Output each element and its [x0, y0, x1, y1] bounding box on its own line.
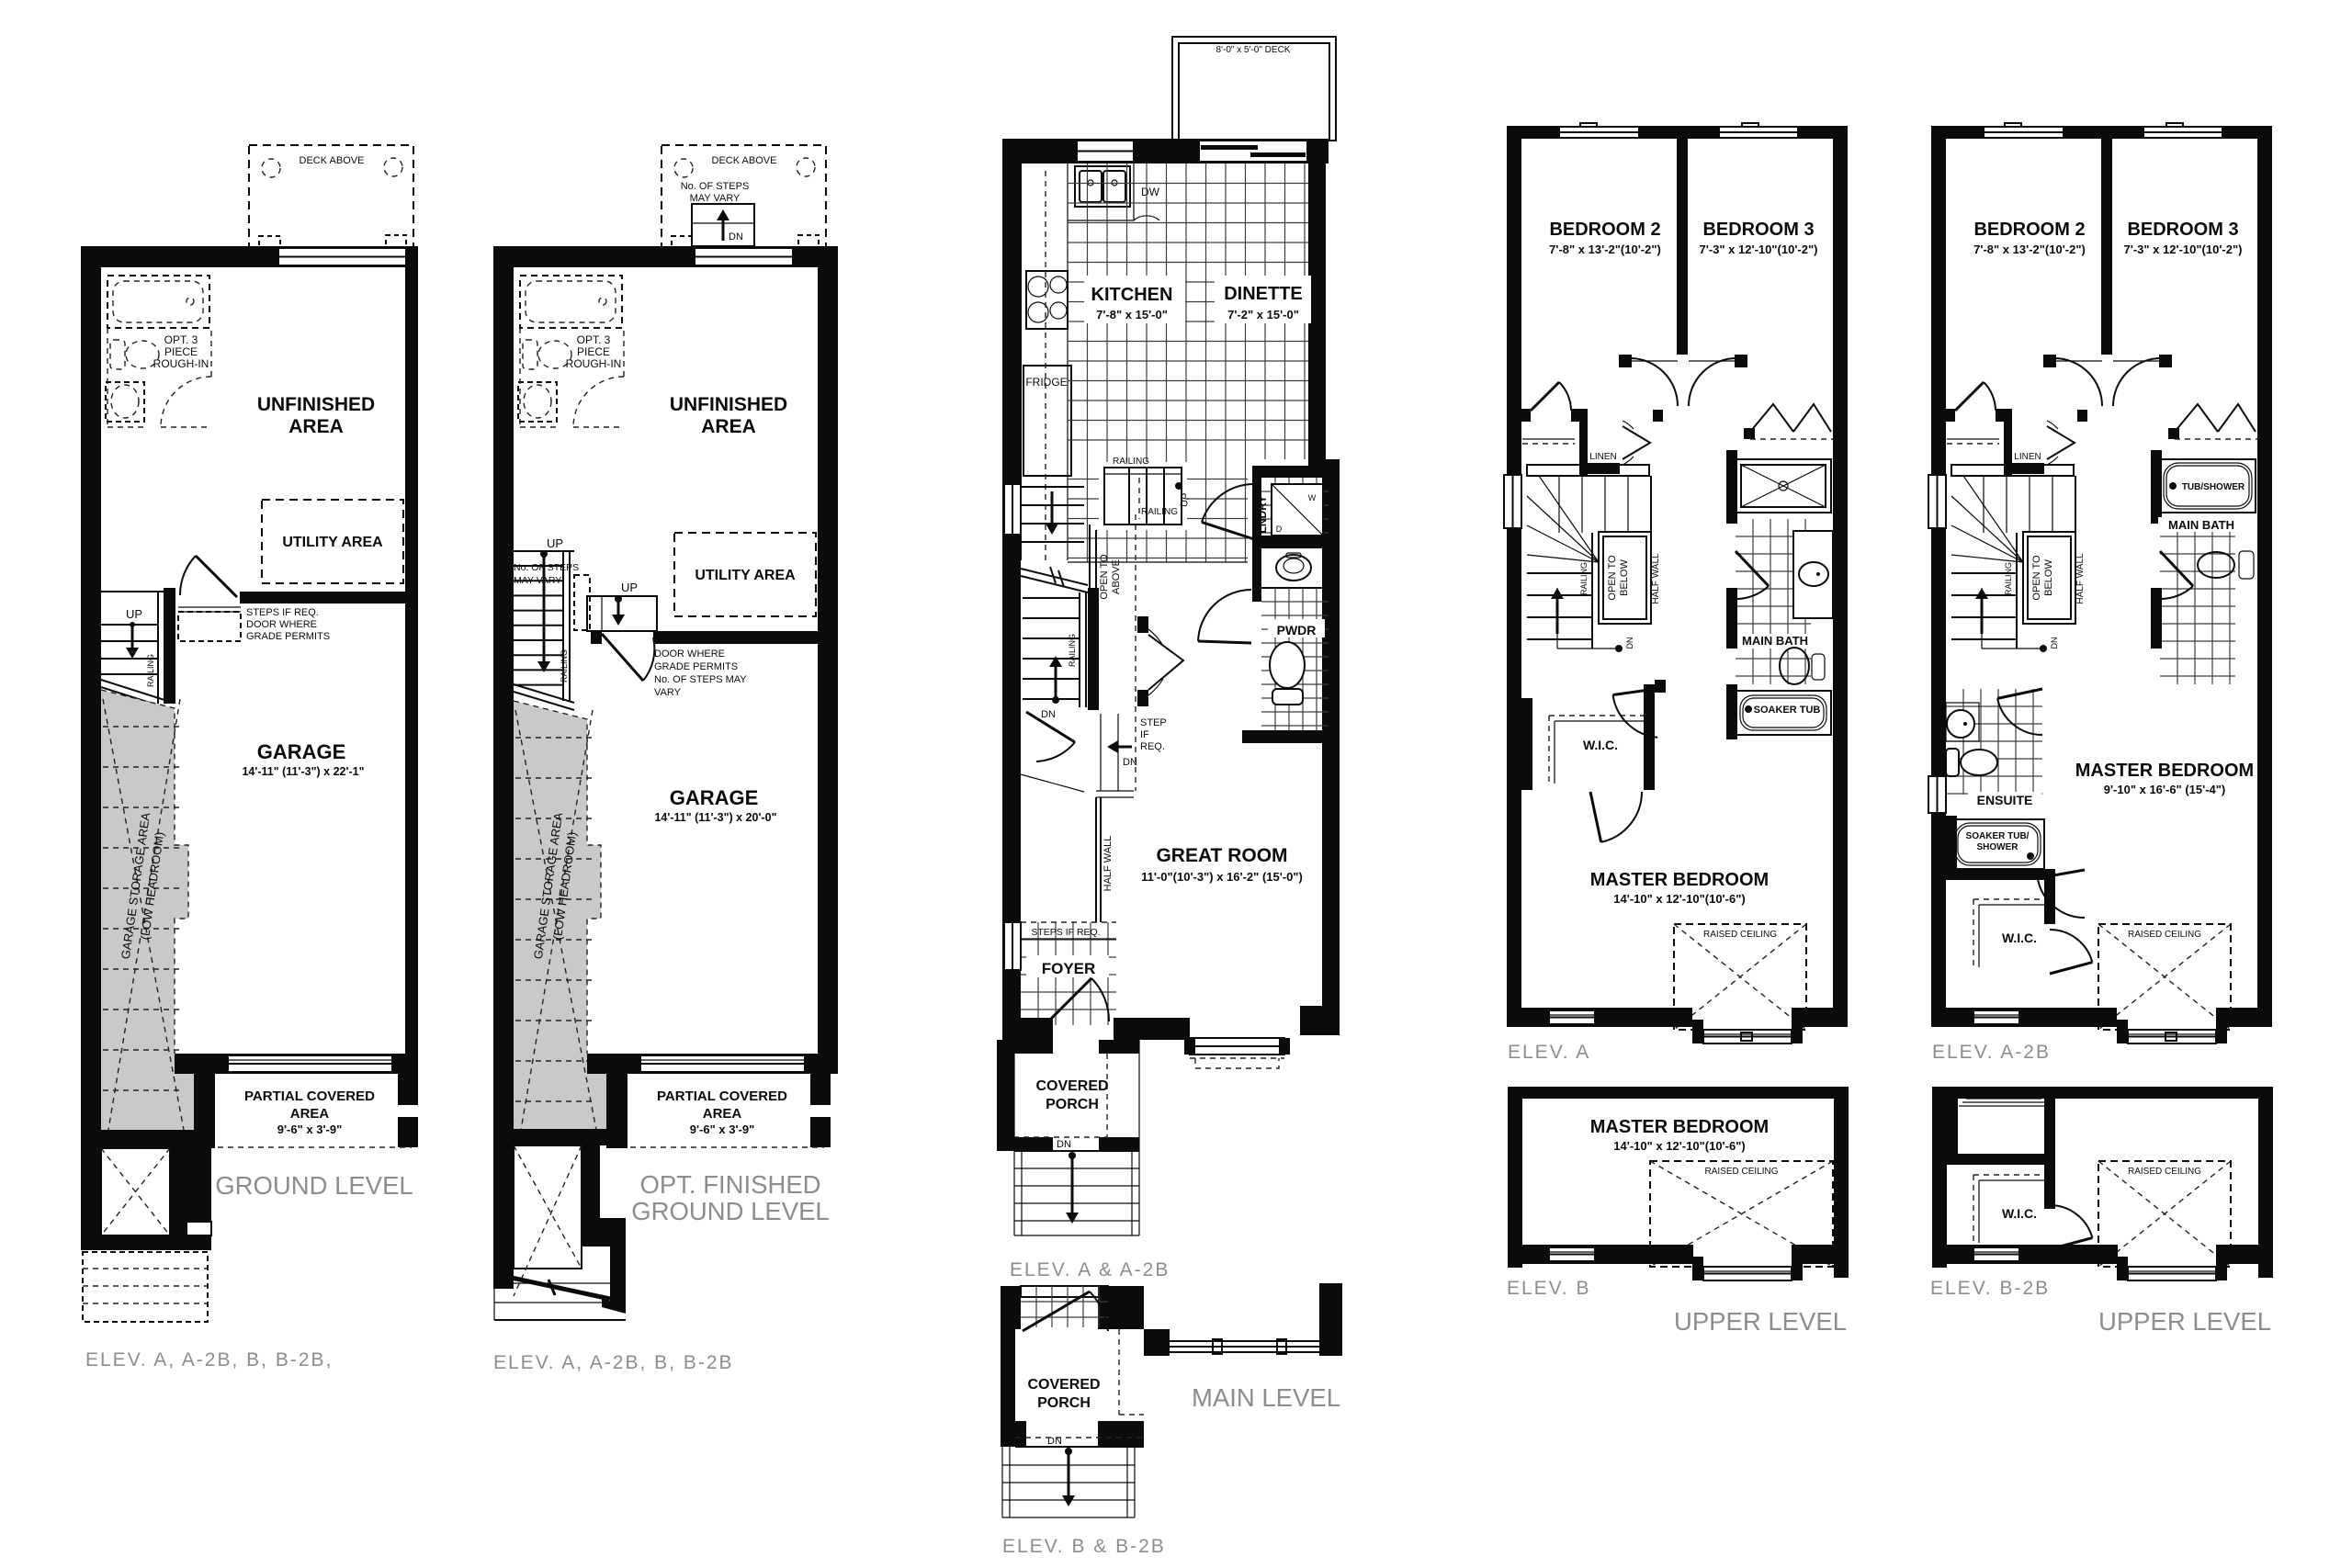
svg-text:BEDROOM 3: BEDROOM 3 [2127, 220, 2238, 240]
svg-text:DN: DN [1123, 757, 1137, 768]
svg-text:PARTIAL COVERED: PARTIAL COVERED [657, 1089, 787, 1104]
svg-text:ELEV. A-2B: ELEV. A-2B [1932, 1042, 2051, 1063]
svg-text:UNFINISHED: UNFINISHED [670, 394, 787, 415]
svg-text:ENSUITE: ENSUITE [1977, 793, 2033, 807]
svg-text:D: D [1276, 525, 1283, 534]
svg-text:RAILING: RAILING [1113, 457, 1149, 467]
svg-text:OPT. FINISHED: OPT. FINISHED [639, 1170, 820, 1199]
svg-text:OPT. 3: OPT. 3 [164, 333, 198, 346]
svg-text:FOYER: FOYER [1042, 960, 1096, 977]
svg-text:HALF WALL: HALF WALL [1000, 1067, 1010, 1119]
svg-text:UPPER LEVEL: UPPER LEVEL [1674, 1307, 1847, 1336]
svg-text:OPEN TO: OPEN TO [1099, 554, 1110, 600]
svg-text:GROUND LEVEL: GROUND LEVEL [631, 1197, 829, 1225]
svg-text:DN: DN [1041, 709, 1056, 720]
svg-text:OPT. 3: OPT. 3 [577, 333, 611, 346]
svg-text:DECK ABOVE: DECK ABOVE [300, 155, 365, 166]
svg-text:MAIN LEVEL: MAIN LEVEL [1192, 1383, 1340, 1412]
svg-text:AREA: AREA [703, 1106, 742, 1122]
svg-text:UP: UP [126, 607, 142, 621]
svg-text:UTILITY AREA: UTILITY AREA [282, 535, 383, 550]
svg-text:COVERED: COVERED [1027, 1377, 1100, 1393]
svg-text:ELEV. B & B-2B: ELEV. B & B-2B [1002, 1536, 1166, 1557]
svg-text:RAISED CEILING: RAISED CEILING [2128, 1167, 2201, 1177]
svg-text:MASTER BEDROOM: MASTER BEDROOM [1590, 870, 1769, 890]
svg-text:W: W [1308, 493, 1317, 502]
svg-text:GARAGE: GARAGE [257, 740, 346, 763]
svg-text:14'-10" x 12'-10"(10'-6"): 14'-10" x 12'-10"(10'-6") [1613, 892, 1745, 906]
svg-text:7'-2" x 15'-0": 7'-2" x 15'-0" [1227, 308, 1299, 321]
svg-text:TUB/SHOWER: TUB/SHOWER [2182, 482, 2245, 492]
svg-text:SHOWER: SHOWER [1977, 842, 2019, 852]
svg-text:PWDR: PWDR [1277, 623, 1317, 637]
svg-text:HALF WALL: HALF WALL [1102, 836, 1114, 892]
svg-text:9'-6" x 3'-9": 9'-6" x 3'-9" [690, 1122, 755, 1136]
svg-text:RAILING: RAILING [2004, 562, 2013, 595]
svg-text:MAY VARY: MAY VARY [690, 193, 741, 204]
svg-text:GARAGE: GARAGE [670, 786, 759, 809]
svg-text:UP: UP [621, 581, 638, 594]
svg-text:PIECE: PIECE [164, 345, 198, 358]
svg-text:UTILITY AREA: UTILITY AREA [695, 568, 796, 583]
svg-text:PORCH: PORCH [1037, 1395, 1091, 1411]
svg-text:7'-8" x 13'-2"(10'-2"): 7'-8" x 13'-2"(10'-2") [1549, 243, 1661, 256]
svg-text:7'-3" x 12'-10"(10'-2"): 7'-3" x 12'-10"(10'-2") [1700, 243, 1818, 256]
svg-text:RAILING: RAILING [1141, 507, 1178, 517]
svg-text:7'-3" x 12'-10"(10'-2"): 7'-3" x 12'-10"(10'-2") [2124, 243, 2243, 256]
svg-text:MASTER BEDROOM: MASTER BEDROOM [1590, 1117, 1769, 1137]
svg-text:ELEV. B: ELEV. B [1507, 1278, 1590, 1299]
svg-text:ELEV. A & A-2B: ELEV. A & A-2B [1010, 1259, 1170, 1280]
svg-text:REQ.: REQ. [1140, 741, 1165, 752]
svg-text:COVERED: COVERED [1035, 1078, 1108, 1094]
svg-text:UNFINISHED: UNFINISHED [257, 394, 375, 415]
svg-text:HALF WALL: HALF WALL [1651, 553, 1661, 604]
svg-text:HALF WALL: HALF WALL [2075, 553, 2086, 604]
svg-text:No. OF STEPS: No. OF STEPS [681, 181, 750, 192]
svg-text:MAY VARY: MAY VARY [514, 575, 561, 586]
svg-text:14'-11" (11'-3") x 20'-0": 14'-11" (11'-3") x 20'-0" [654, 811, 776, 824]
svg-text:BEDROOM 3: BEDROOM 3 [1702, 220, 1814, 240]
svg-text:RAILING: RAILING [560, 649, 569, 682]
svg-text:No. OF STEPS MAY: No. OF STEPS MAY [654, 674, 747, 685]
svg-text:No. OF STEPS: No. OF STEPS [514, 562, 579, 573]
svg-text:LINEN: LINEN [2014, 452, 2041, 462]
svg-text:ELEV. A, A-2B, B, B-2B: ELEV. A, A-2B, B, B-2B [493, 1352, 734, 1373]
svg-text:AREA: AREA [701, 416, 756, 437]
svg-text:W.I.C.: W.I.C. [1583, 738, 1618, 752]
svg-text:BEDROOM 2: BEDROOM 2 [1549, 220, 1660, 240]
svg-text:GREAT ROOM: GREAT ROOM [1156, 845, 1287, 866]
svg-text:PORCH: PORCH [1046, 1097, 1099, 1112]
svg-text:ELEV. A, A-2B, B, B-2B,: ELEV. A, A-2B, B, B-2B, [85, 1349, 333, 1371]
svg-text:AREA: AREA [288, 416, 344, 437]
svg-text:MAIN BATH: MAIN BATH [1742, 634, 1808, 648]
svg-text:RAILING: RAILING [1068, 634, 1077, 667]
svg-text:HALF WALL: HALF WALL [1003, 1352, 1013, 1404]
svg-text:SOAKER TUB/: SOAKER TUB/ [1966, 831, 2030, 841]
svg-text:STEPS IF REQ.: STEPS IF REQ. [1031, 927, 1100, 938]
svg-text:MAIN BATH: MAIN BATH [2168, 518, 2234, 532]
svg-text:ABOVE: ABOVE [1111, 559, 1122, 594]
svg-text:PIECE: PIECE [577, 345, 610, 358]
svg-text:DN: DN [2050, 637, 2059, 649]
svg-text:7'-8" x 15'-0": 7'-8" x 15'-0" [1096, 308, 1168, 321]
svg-text:RAISED CEILING: RAISED CEILING [1703, 930, 1777, 940]
svg-text:14'-10" x 12'-10"(10'-6"): 14'-10" x 12'-10"(10'-6") [1613, 1139, 1745, 1153]
svg-text:PARTIAL COVERED: PARTIAL COVERED [244, 1089, 375, 1104]
svg-text:BELOW: BELOW [2043, 559, 2054, 596]
svg-text:DW: DW [1141, 186, 1160, 198]
svg-text:14'-11" (11'-3") x 22'-1": 14'-11" (11'-3") x 22'-1" [242, 765, 364, 778]
svg-text:DN: DN [1625, 637, 1634, 649]
svg-text:GRADE PERMITS: GRADE PERMITS [654, 661, 738, 672]
svg-text:7'-8" x 13'-2"(10'-2"): 7'-8" x 13'-2"(10'-2") [1973, 243, 2086, 256]
svg-text:IF: IF [1140, 729, 1149, 740]
svg-text:11'-0"(10'-3") x 16'-2" (15'-: 11'-0"(10'-3") x 16'-2" (15'-0") [1141, 870, 1303, 884]
svg-text:STEP: STEP [1140, 717, 1167, 728]
svg-text:ELEV. A: ELEV. A [1508, 1042, 1590, 1063]
svg-text:RAISED CEILING: RAISED CEILING [2128, 930, 2201, 940]
svg-text:RAISED CEILING: RAISED CEILING [1704, 1167, 1778, 1177]
svg-text:W.I.C.: W.I.C. [2002, 1206, 2037, 1221]
svg-text:ROUGH-IN: ROUGH-IN [566, 357, 622, 370]
svg-text:W.I.C.: W.I.C. [2002, 931, 2037, 945]
svg-text:GROUND LEVEL: GROUND LEVEL [215, 1171, 413, 1200]
svg-text:OPEN TO: OPEN TO [2031, 555, 2042, 601]
svg-text:9'-6" x 3'-9": 9'-6" x 3'-9" [277, 1122, 343, 1136]
svg-text:DECK ABOVE: DECK ABOVE [712, 155, 777, 166]
svg-text:UPPER LEVEL: UPPER LEVEL [2098, 1307, 2271, 1336]
svg-text:RAILING: RAILING [146, 654, 155, 687]
svg-text:DOOR WHERE: DOOR WHERE [246, 619, 317, 630]
svg-text:VARY: VARY [654, 687, 682, 698]
svg-text:DOOR WHERE: DOOR WHERE [654, 649, 725, 660]
svg-text:SOAKER TUB: SOAKER TUB [1754, 705, 1821, 716]
svg-text:BEDROOM 2: BEDROOM 2 [1973, 220, 2085, 240]
svg-text:UP: UP [547, 536, 563, 550]
svg-text:LINEN: LINEN [1589, 452, 1616, 462]
svg-text:OPEN TO: OPEN TO [1607, 555, 1618, 601]
svg-text:AREA: AREA [290, 1106, 330, 1122]
svg-text:8'-0" x 5'-0" DECK: 8'-0" x 5'-0" DECK [1216, 45, 1291, 55]
svg-text:MASTER BEDROOM: MASTER BEDROOM [2075, 761, 2254, 781]
svg-text:9'-10" x 16'-6" (15'-4"): 9'-10" x 16'-6" (15'-4") [2104, 783, 2226, 796]
svg-text:DN: DN [729, 231, 743, 243]
svg-text:RAILING: RAILING [1579, 562, 1589, 595]
svg-text:DN: DN [1057, 1139, 1071, 1150]
svg-text:ROUGH-IN: ROUGH-IN [153, 357, 209, 370]
svg-text:GRADE PERMITS: GRADE PERMITS [246, 631, 330, 642]
svg-text:LNDRY: LNDRY [1256, 496, 1269, 534]
svg-text:FRIDGE: FRIDGE [1025, 376, 1067, 389]
svg-text:ELEV. B-2B: ELEV. B-2B [1930, 1278, 2050, 1299]
svg-text:KITCHEN: KITCHEN [1091, 285, 1173, 305]
svg-text:STEPS IF REQ.: STEPS IF REQ. [246, 607, 319, 618]
svg-text:DINETTE: DINETTE [1224, 284, 1303, 304]
svg-text:BELOW: BELOW [1619, 559, 1630, 596]
